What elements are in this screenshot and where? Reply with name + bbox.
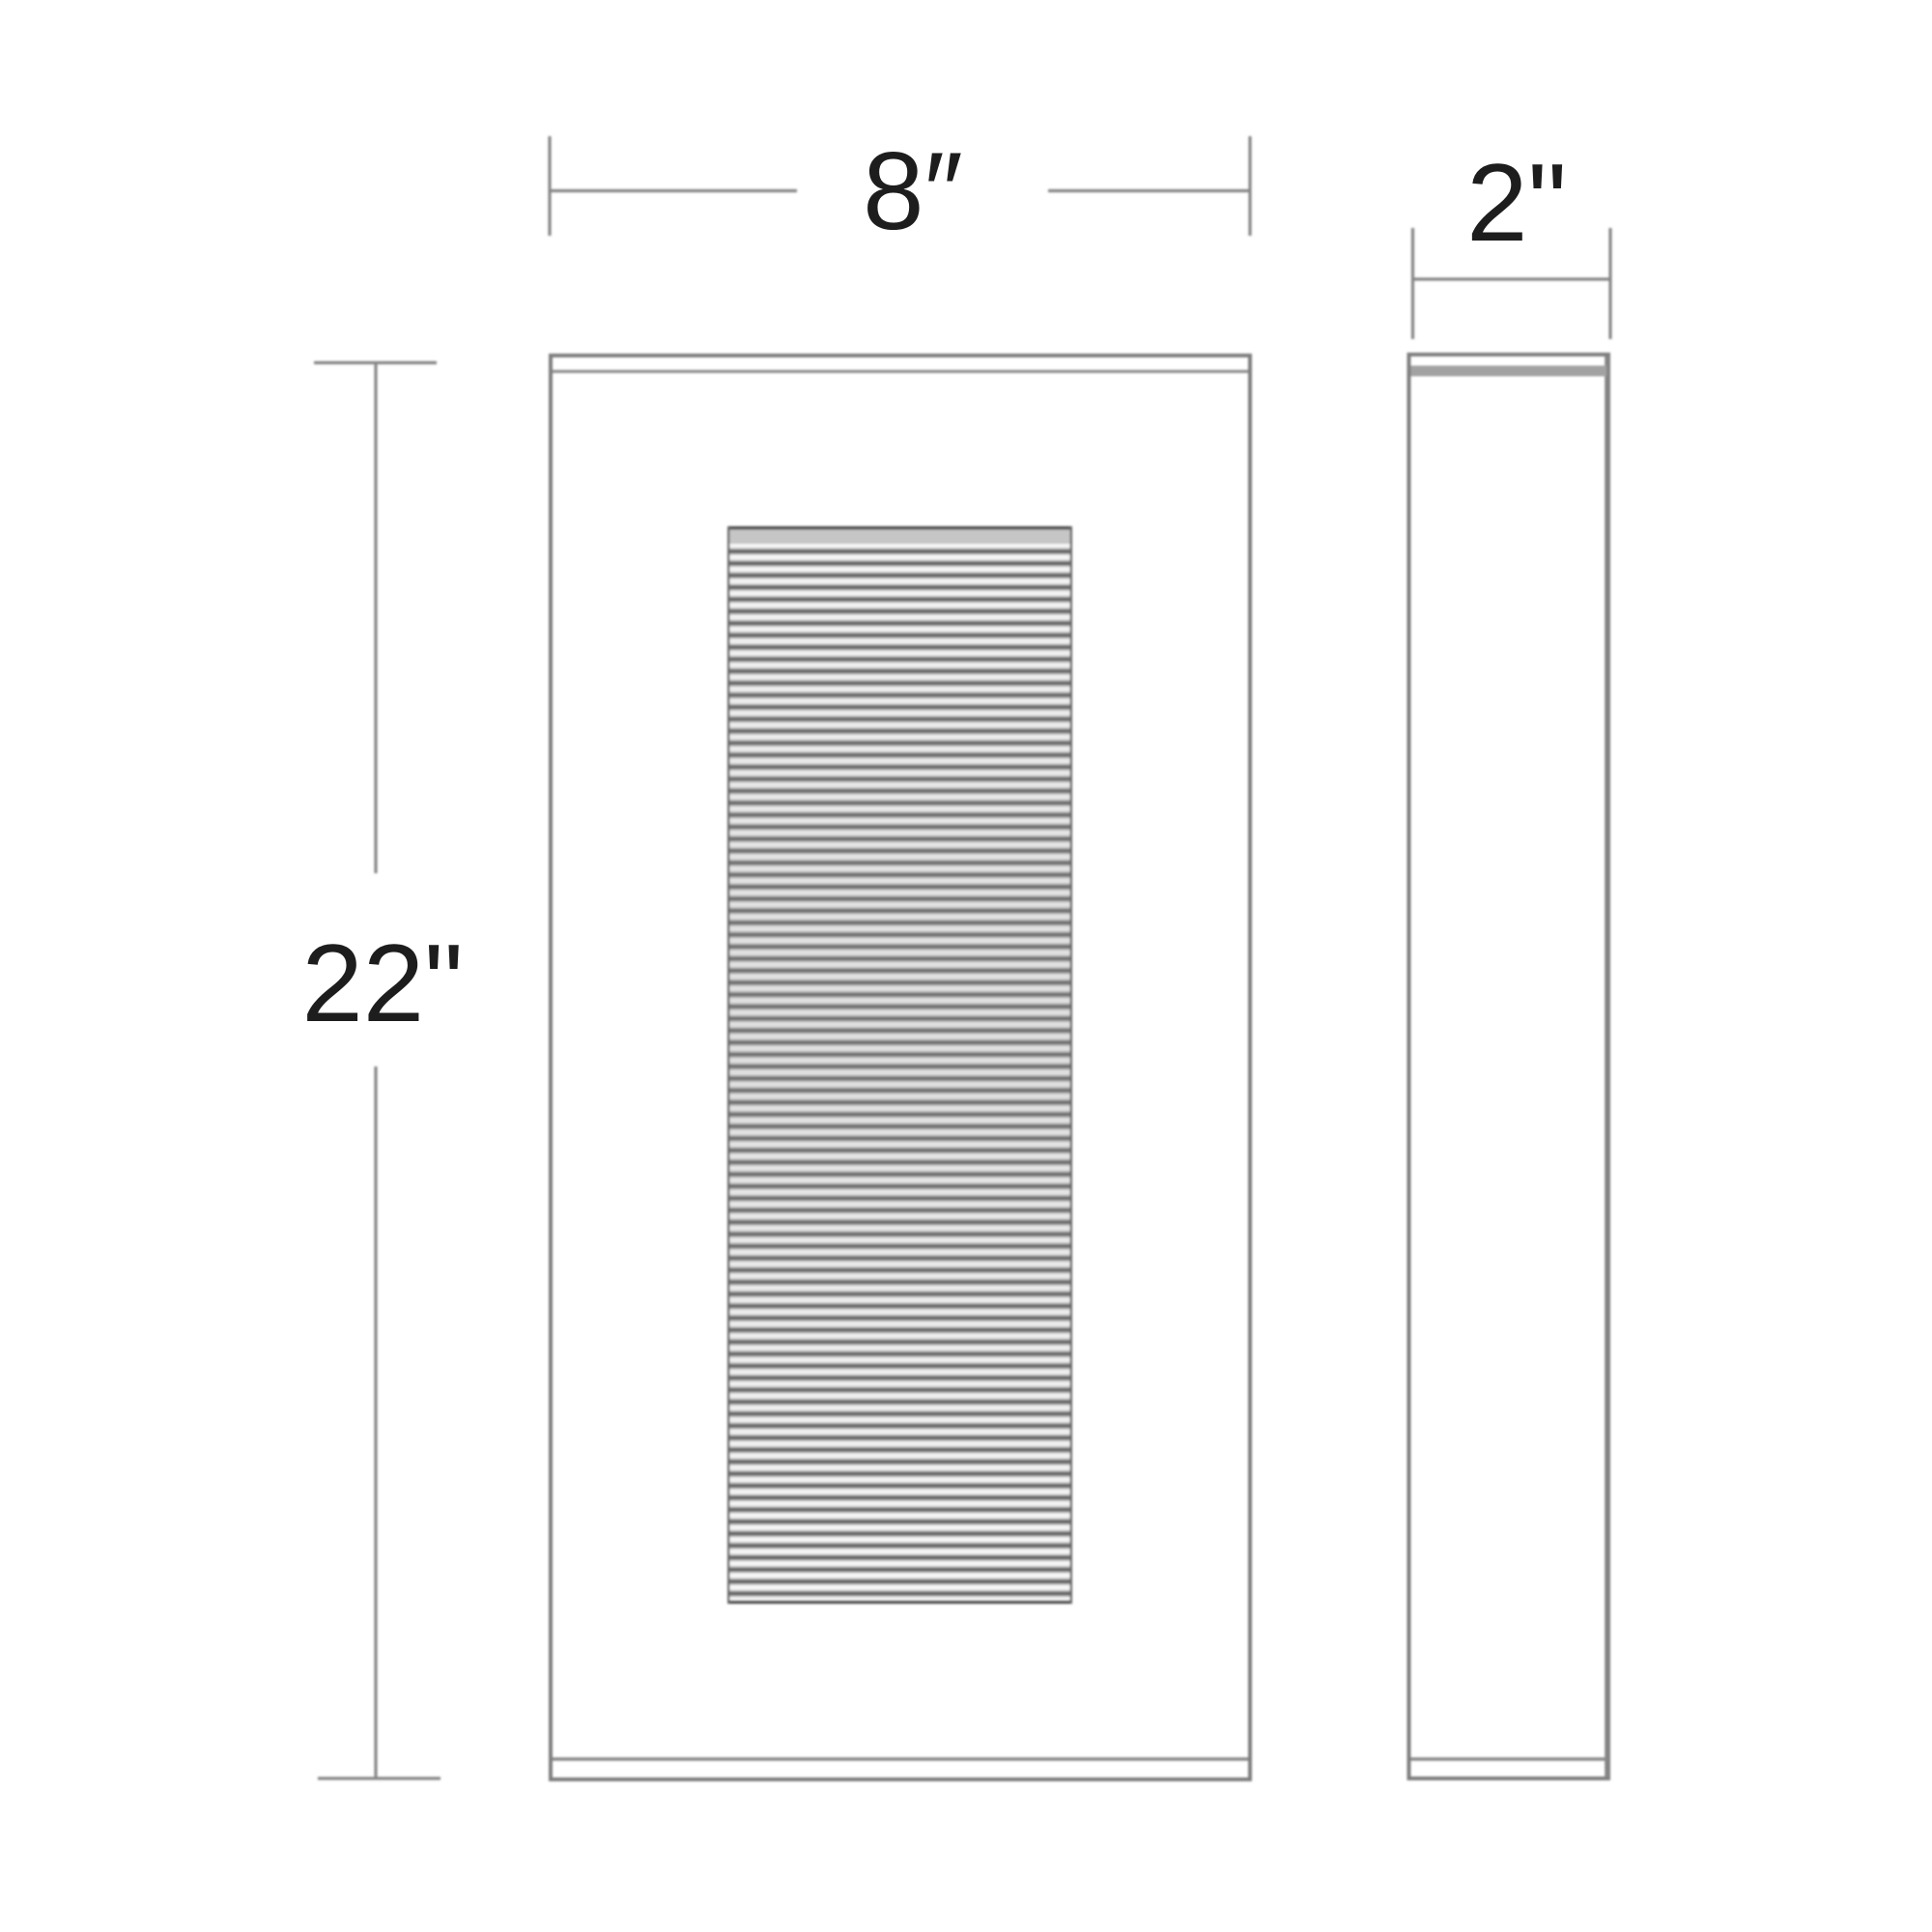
svg-text:22": 22" (301, 923, 463, 1045)
svg-text:8″: 8″ (863, 130, 963, 253)
svg-text:2": 2" (1466, 142, 1567, 265)
